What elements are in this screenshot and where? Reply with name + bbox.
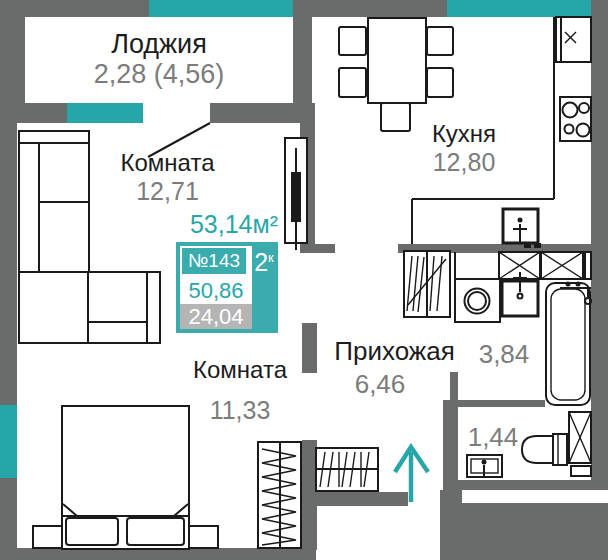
wall-corner-br-2 <box>440 503 608 560</box>
wall-living-kitchen <box>300 103 315 253</box>
wall-under-loggia-right <box>210 103 312 123</box>
bedroom-name: Комната <box>174 357 306 384</box>
wall-right <box>591 0 608 490</box>
loggia-name: Лоджия <box>25 29 293 59</box>
living-label-block: Комната 12,71 <box>95 150 240 205</box>
living-area: 12,71 <box>95 177 240 205</box>
kitchen-name: Кухня <box>399 121 529 148</box>
wall-living-kitchen-foot <box>315 244 335 253</box>
bathroom-sink <box>502 272 538 316</box>
secondary-area-value: 24,04 <box>180 304 252 329</box>
hall-closet <box>404 251 450 317</box>
wall-hall-bottom <box>302 492 408 506</box>
bathtub <box>546 282 591 406</box>
building-corridor <box>462 490 608 503</box>
wall-bath-bottom <box>450 400 545 407</box>
wall-under-loggia-left <box>17 103 67 123</box>
wall-kitchen-bottom <box>398 244 591 253</box>
window-bedroom-left <box>0 405 17 478</box>
loggia-label-block: Лоджия 2,28 (4,56) <box>25 29 293 89</box>
bathroom-cabinets-crossed <box>455 252 591 280</box>
kitchen-area: 12,80 <box>399 148 529 176</box>
living-name: Комната <box>95 150 240 177</box>
wall-loggia-left <box>17 17 25 103</box>
floor-plan: Лоджия 2,28 (4,56) Комната 12,71 Кухня 1… <box>0 0 608 560</box>
bedroom-area: 11,33 <box>174 396 306 424</box>
kitchen-sink <box>503 209 541 248</box>
stove <box>560 97 591 141</box>
entrance-closet <box>316 448 378 491</box>
bathroom-area: 3,84 <box>464 339 544 370</box>
flat-number: №143 <box>180 246 248 276</box>
living-area-value: 50,86 <box>180 278 252 304</box>
dining-table-and-chairs <box>339 18 453 131</box>
flat-info-badge: №143 2к 50,86 24,04 <box>176 242 278 333</box>
wall-bottom <box>0 548 316 560</box>
rooms-count: 2к <box>250 248 278 277</box>
wc-sink <box>467 455 502 477</box>
window-kitchen-top <box>447 0 591 17</box>
hallway-area: 6,46 <box>330 369 430 400</box>
wall-corner-br-1 <box>440 490 462 503</box>
bed <box>62 406 189 549</box>
total-area-label: 53,14м² <box>158 210 278 239</box>
wall-loggia-right <box>293 17 312 103</box>
wall-wc-bottom <box>458 480 608 490</box>
upper-cabinet-crossed <box>556 17 591 62</box>
nightstands <box>33 526 218 548</box>
wc-area: 1,44 <box>453 422 533 453</box>
window-loggia-top <box>149 0 293 17</box>
kitchen-label-block: Кухня 12,80 <box>399 121 529 176</box>
bedroom-wardrobe <box>258 442 301 548</box>
hallway-name: Прихожая <box>322 337 467 366</box>
window-loggia-door <box>67 103 143 123</box>
bedroom-label-block: Комната 11,33 <box>174 357 306 424</box>
washing-machine <box>455 279 500 322</box>
wc-cabinet-crossed <box>569 412 591 476</box>
loggia-area: 2,28 (4,56) <box>25 59 293 89</box>
